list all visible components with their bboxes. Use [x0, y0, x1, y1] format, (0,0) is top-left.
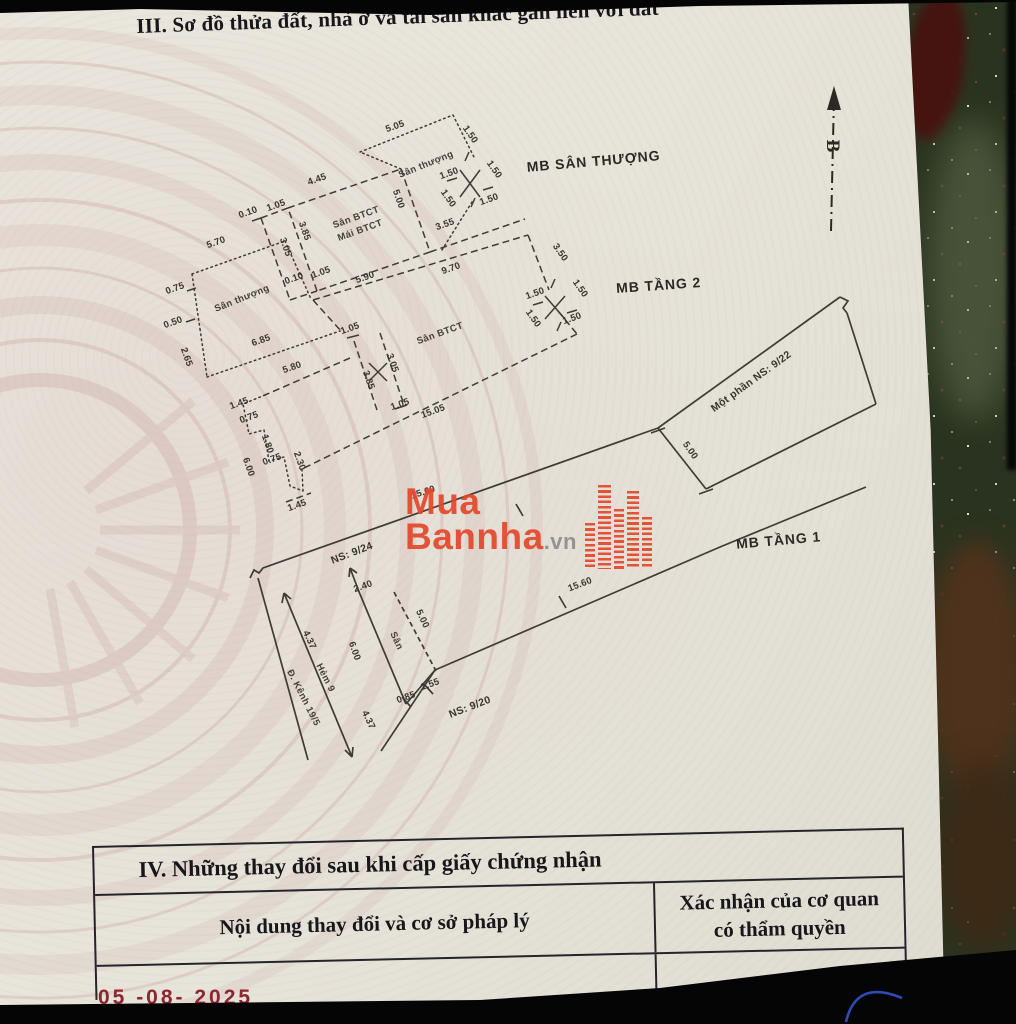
fabric-patch: [926, 540, 1016, 800]
photo-of-land-certificate: B 5.051.50Sân thượng1.501.501.501.504.45…: [0, 0, 1016, 1024]
fabric-patch: [938, 760, 1016, 950]
fabric-patch: [928, 120, 1016, 420]
watermark-line1: Mua: [405, 485, 577, 520]
col-header-content-changes: Nội dung thay đổi và cơ sở pháp lý: [95, 883, 654, 965]
col-header-authority-confirmation: Xác nhận của cơ quan có thẩm quyền: [653, 878, 905, 953]
watermark-line2: Bannha.vn: [405, 520, 577, 555]
watermark: Mua Bannha.vn: [405, 485, 652, 569]
watermark-text: Mua Bannha.vn: [405, 485, 577, 555]
watermark-vn: .vn: [544, 529, 577, 554]
column-divider: [654, 954, 657, 989]
fabric-dark-edge: [1007, 0, 1016, 470]
watermark-buildings-icon: [585, 485, 652, 569]
